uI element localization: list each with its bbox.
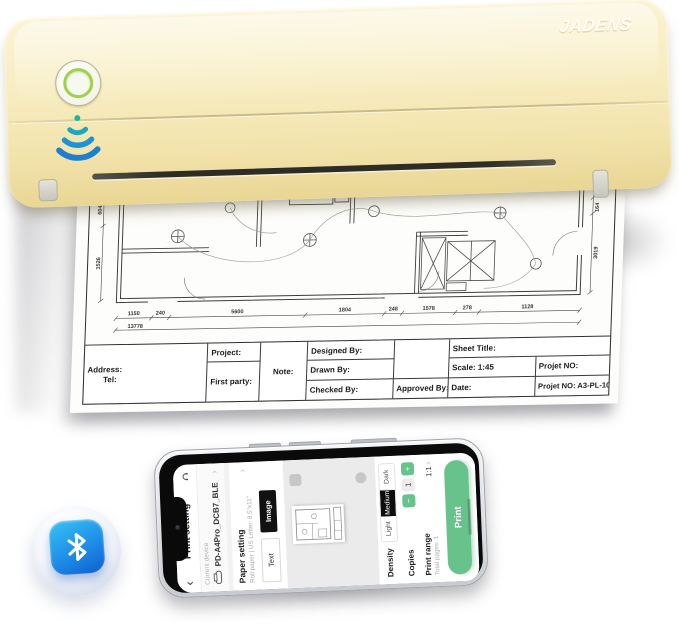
left-latch: [38, 179, 58, 202]
preview-action-icon[interactable]: [355, 472, 366, 483]
paper-setting-value: Roll paper | US Letter: 8.5"x11": [246, 496, 257, 583]
brand-logo: JADENS: [558, 15, 633, 37]
address-label: Address:: [87, 365, 122, 375]
bluetooth-icon: [48, 518, 106, 576]
svg-text:278: 278: [463, 305, 472, 311]
svg-text:1526: 1526: [96, 257, 102, 269]
svg-text:604: 604: [98, 204, 104, 214]
text-mode-button[interactable]: Text: [261, 538, 282, 583]
print-app: ‹ Print setting Current device: [173, 453, 480, 594]
support-icon[interactable]: [179, 471, 189, 481]
smartphone: ‹ Print setting Current device: [153, 437, 489, 599]
print-range-value: 1:1: [424, 466, 433, 477]
table-cell-address: Address: Tel:: [83, 344, 208, 404]
table-cell-designed-by: Designed By:: [308, 340, 395, 361]
table-cell-drawn-by: Drawn By:: [307, 360, 394, 381]
product-photo: 1150 240 5600 1804 248 1578 278 1128 137…: [0, 0, 679, 624]
table-cell-scale: Scale: 1:45: [449, 357, 536, 378]
svg-text:248: 248: [389, 306, 398, 312]
density-dark-option[interactable]: Dark: [379, 464, 395, 491]
table-cell-date: Date:: [448, 376, 535, 397]
svg-text:240: 240: [156, 311, 165, 317]
printer-device-icon: [213, 570, 224, 584]
svg-text:3019: 3019: [593, 247, 599, 259]
table-cell-approved-by: Approved By:: [393, 378, 449, 398]
print-range-row[interactable]: Print range Total pages: 1 1:1 ›: [416, 454, 444, 583]
back-icon[interactable]: ‹: [183, 581, 196, 586]
bluetooth-badge: [28, 500, 128, 608]
print-range-label: Print range: [423, 533, 434, 576]
wireless-waves-icon: [40, 109, 116, 179]
copies-label: Copies: [406, 549, 416, 576]
copies-value: 1: [401, 478, 415, 492]
table-cell-projet-no-value: Projet NO: A3-PL-10: [535, 375, 609, 396]
density-label: Density: [385, 548, 395, 577]
table-cell-checked-by: Checked By:: [306, 379, 393, 400]
table-cell-first-party: First party:: [207, 362, 261, 402]
table-cell-note: Note:: [259, 342, 308, 401]
print-preview-area: [283, 457, 380, 589]
table-cell-projet-no: Projet NO:: [535, 356, 609, 377]
image-mode-button[interactable]: Image: [259, 490, 278, 533]
chevron-right-icon: ›: [209, 470, 218, 473]
density-medium-option[interactable]: Medium: [380, 490, 396, 517]
svg-text:1150: 1150: [128, 311, 140, 317]
chevron-right-icon: ›: [424, 461, 433, 464]
svg-text:5600: 5600: [231, 309, 243, 315]
power-button: [55, 59, 102, 106]
tel-label: Tel:: [87, 375, 117, 385]
svg-text:1578: 1578: [422, 306, 434, 312]
table-cell-project: Project:: [208, 343, 261, 363]
thermal-printer: JADENS: [3, 0, 673, 208]
device-name: PD-A4Pro_DCB7_BLE: [210, 477, 223, 566]
svg-text:1128: 1128: [521, 304, 533, 310]
paper-output-slot: [92, 159, 556, 180]
drawing-border: 1150 240 5600 1804 248 1578 278 1128 137…: [82, 175, 617, 404]
svg-text:1804: 1804: [339, 307, 352, 313]
chevron-right-icon: ›: [238, 469, 247, 472]
document-thumbnail[interactable]: [291, 504, 345, 544]
density-light-option[interactable]: Light: [381, 516, 397, 542]
increase-copies-button[interactable]: +: [401, 462, 415, 476]
phone-screen: ‹ Print setting Current device: [158, 442, 483, 593]
table-cell-empty: [394, 339, 450, 379]
density-segmented-control: Light Medium Dark: [378, 463, 398, 543]
svg-text:13778: 13778: [127, 324, 143, 330]
right-latch: [592, 170, 609, 198]
svg-text:164: 164: [595, 202, 601, 212]
preview-page-badge: [289, 474, 301, 486]
copies-stepper: − 1 +: [401, 462, 416, 508]
total-pages-label: Total pages: 1: [433, 533, 442, 575]
printed-document: 1150 240 5600 1804 248 1578 278 1128 137…: [70, 171, 626, 413]
decrease-copies-button[interactable]: −: [402, 494, 416, 508]
title-block-table: Address: Tel: Project: First party: Note…: [82, 336, 611, 405]
power-led-ring: [63, 68, 94, 99]
